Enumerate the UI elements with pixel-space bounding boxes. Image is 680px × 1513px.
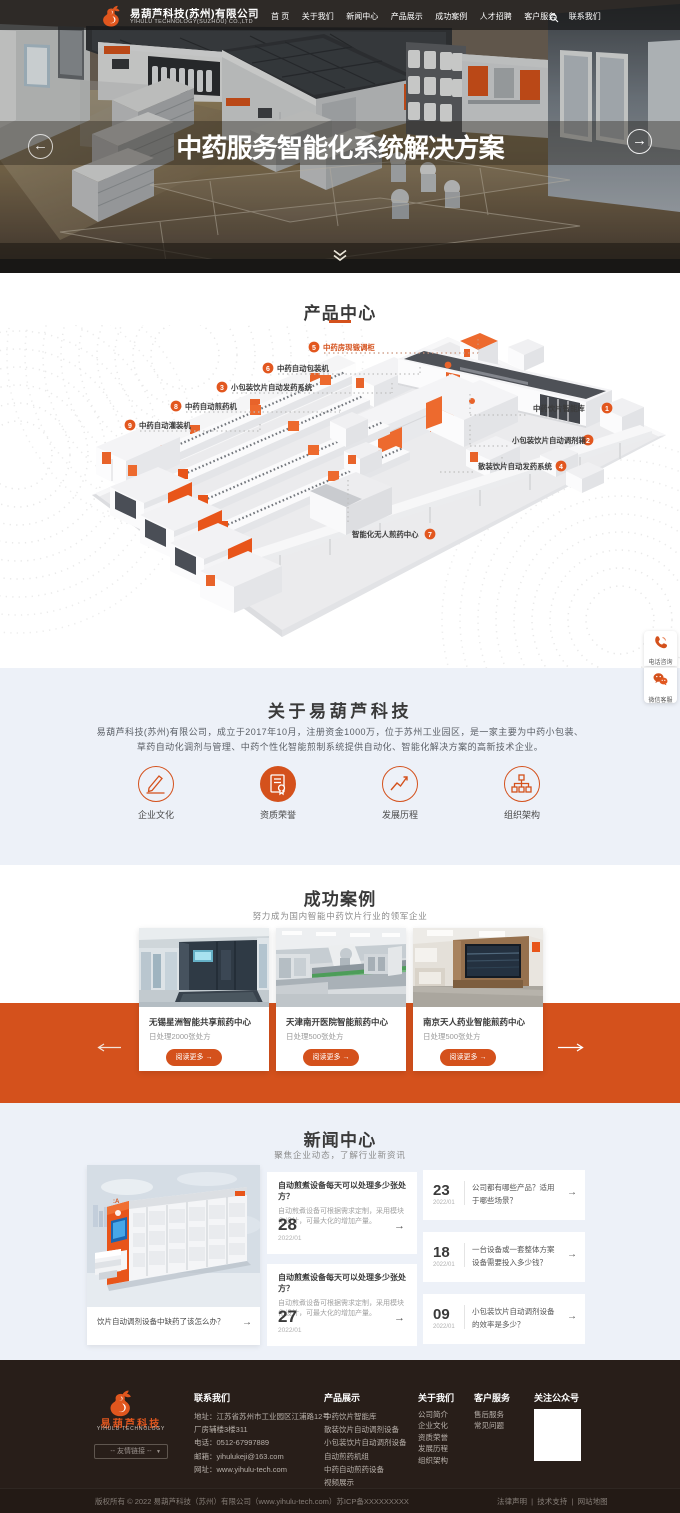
svg-text:中药自动煎药机: 中药自动煎药机 — [185, 402, 237, 411]
svg-text:中药自动灌装机: 中药自动灌装机 — [139, 421, 191, 430]
svg-text:小包装饮片自动调剂箱: 小包装饮片自动调剂箱 — [511, 436, 587, 445]
svg-text:2: 2 — [586, 438, 590, 445]
svg-text:7: 7 — [428, 532, 432, 539]
svg-text:中药自动包装机: 中药自动包装机 — [277, 364, 329, 373]
svg-text:5: 5 — [312, 345, 316, 352]
svg-text:3: 3 — [220, 385, 224, 392]
svg-text:散装饮片自动发药系统: 散装饮片自动发药系统 — [478, 462, 553, 471]
svg-text:1: 1 — [605, 406, 609, 413]
svg-text:8: 8 — [174, 404, 178, 411]
svg-text:4: 4 — [559, 464, 563, 471]
svg-text::A: :A — [113, 1199, 120, 1205]
svg-text:9: 9 — [128, 423, 132, 430]
svg-text:中药饮片智能库: 中药饮片智能库 — [533, 404, 585, 413]
svg-text:小包装饮片自动发药系统: 小包装饮片自动发药系统 — [230, 383, 313, 392]
svg-text:智能化无人煎药中心: 智能化无人煎药中心 — [351, 530, 419, 539]
svg-text:6: 6 — [266, 366, 270, 373]
svg-text:中药房现锻调柜: 中药房现锻调柜 — [323, 343, 375, 352]
